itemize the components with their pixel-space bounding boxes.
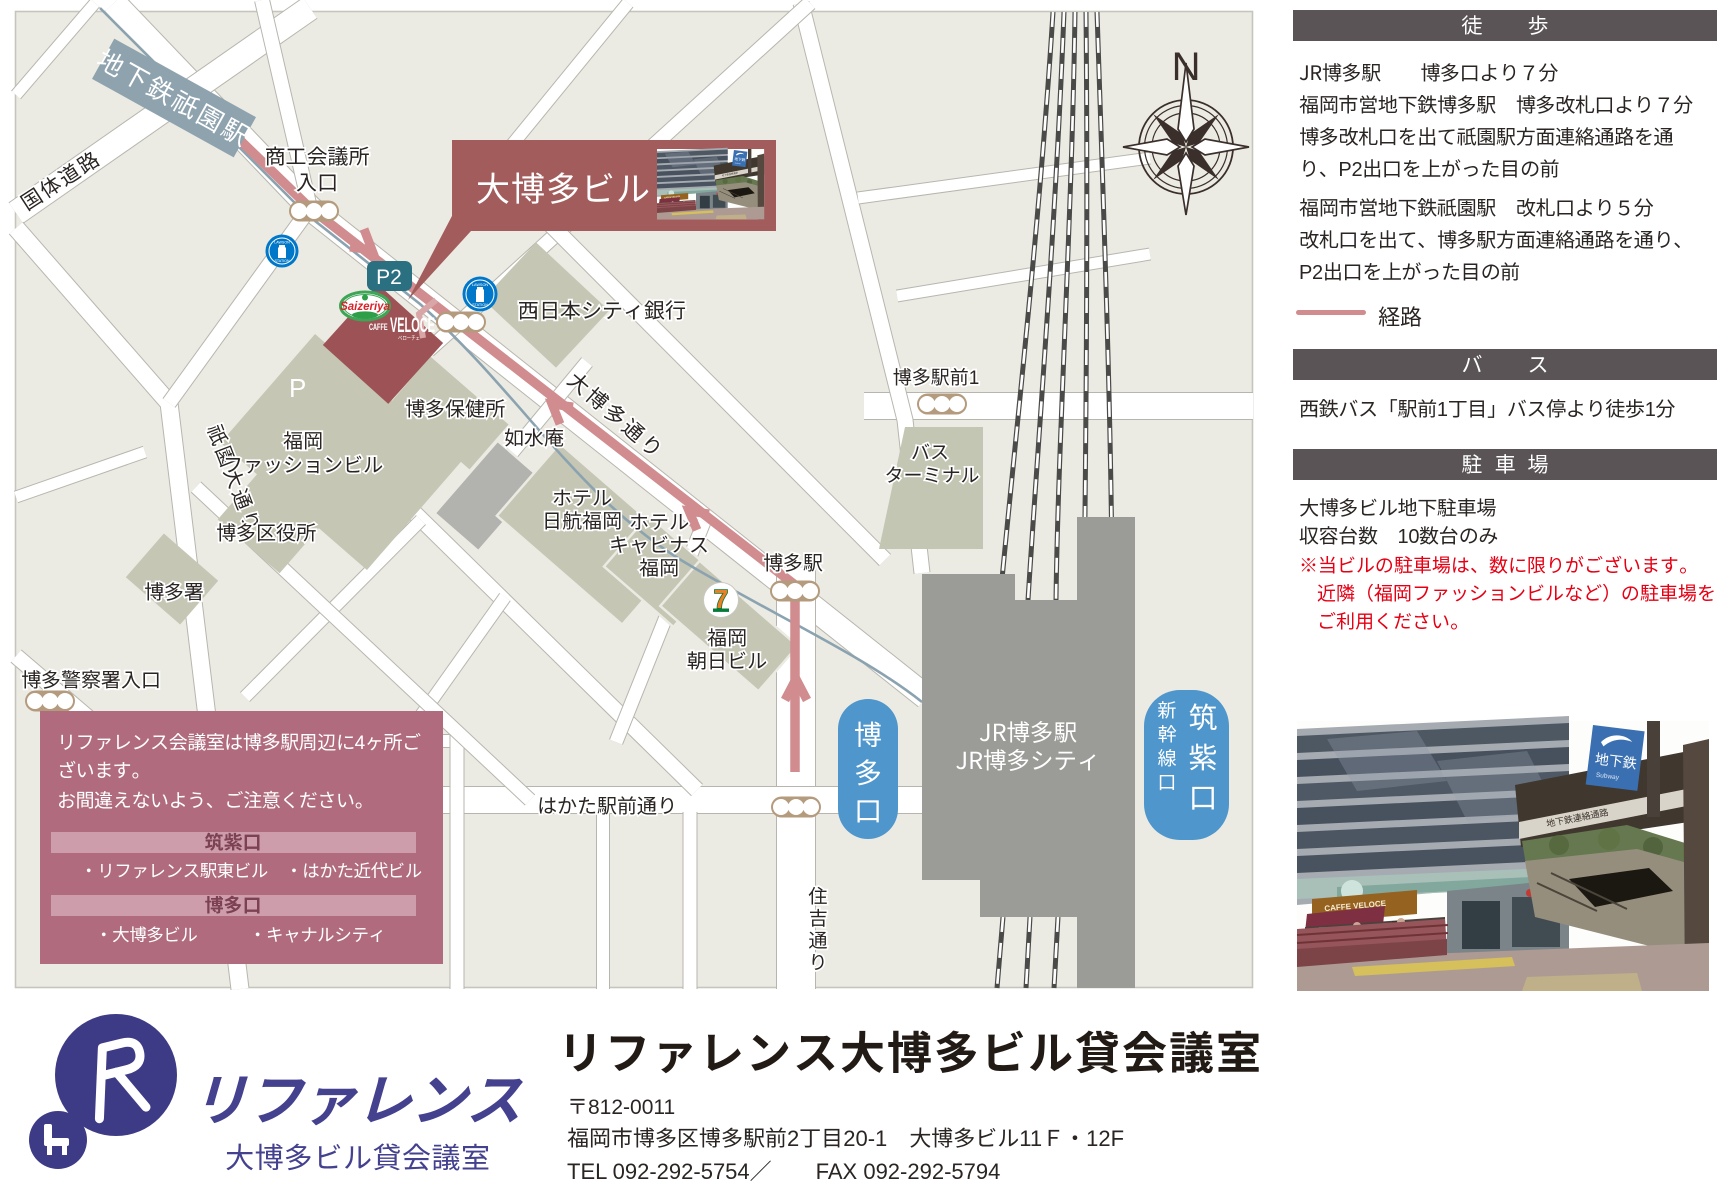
svg-text:はかた駅前通り: はかた駅前通り [537,790,677,819]
svg-text:ターミナル: ターミナル [884,461,979,488]
svg-text:朝日ビル: 朝日ビル [687,645,767,674]
svg-text:線: 線 [1157,744,1176,771]
svg-text:P2: P2 [376,261,402,291]
svg-text:博多区役所: 博多区役所 [216,517,316,546]
svg-text:LAWSON: LAWSON [472,283,489,288]
svg-text:大博多ビル貸会議室: 大博多ビル貸会議室 [225,1135,491,1177]
svg-text:新: 新 [1157,696,1176,723]
svg-text:STATION: STATION [472,303,488,308]
svg-text:P: P [289,368,306,405]
svg-text:ざいます。: ざいます。 [57,756,150,783]
svg-text:筑: 筑 [1188,695,1217,737]
svg-text:多: 多 [854,752,882,792]
svg-text:お間違えないよう、ご注意ください。: お間違えないよう、ご注意ください。 [57,786,373,813]
svg-text:LAWSON: LAWSON [274,241,290,246]
svg-text:博多駅: 博多駅 [763,547,823,576]
svg-text:博: 博 [854,714,882,754]
svg-text:博多署: 博多署 [144,576,204,605]
svg-text:Saizeriya: Saizeriya [340,298,390,314]
svg-text:入口: 入口 [296,167,338,197]
svg-text:・リファレンス駅東ビル ・はかた近代ビル: ・リファレンス駅東ビル ・はかた近代ビル [80,858,422,883]
svg-text:り: り [808,948,827,975]
svg-text:博多駅前1: 博多駅前1 [893,363,980,390]
svg-text:博多保健所: 博多保健所 [405,393,505,422]
svg-text:リファレンス: リファレンス [186,1056,539,1136]
svg-text:ベローチェ: ベローチェ [398,334,420,342]
svg-text:CAFFE: CAFFE [369,320,388,333]
svg-text:ファッションビル: ファッションビル [223,449,383,478]
svg-text:口: 口 [1157,768,1176,795]
svg-text:STATION: STATION [274,259,289,264]
svg-text:口: 口 [1188,775,1217,817]
svg-text:西日本シティ銀行: 西日本シティ銀行 [518,295,686,325]
svg-text:筑紫口: 筑紫口 [204,828,261,855]
svg-text:JR博多シティ: JR博多シティ [956,742,1101,776]
svg-text:幹: 幹 [1157,720,1176,747]
svg-text:大博多ビル: 大博多ビル [476,162,651,211]
svg-text:如水庵: 如水庵 [504,422,564,451]
svg-text:博多口: 博多口 [204,891,261,918]
svg-text:博多警察署入口: 博多警察署入口 [21,664,161,693]
svg-text:口: 口 [854,790,882,830]
svg-text:リファレンス会議室は博多駅周辺に4ヶ所ご: リファレンス会議室は博多駅周辺に4ヶ所ご [57,728,421,755]
svg-text:N: N [1172,34,1201,92]
svg-text:福岡: 福岡 [639,552,679,581]
svg-text:紫: 紫 [1188,735,1217,777]
svg-text:・大博多ビル ・キャナルシティ: ・大博多ビル ・キャナルシティ [95,922,386,947]
